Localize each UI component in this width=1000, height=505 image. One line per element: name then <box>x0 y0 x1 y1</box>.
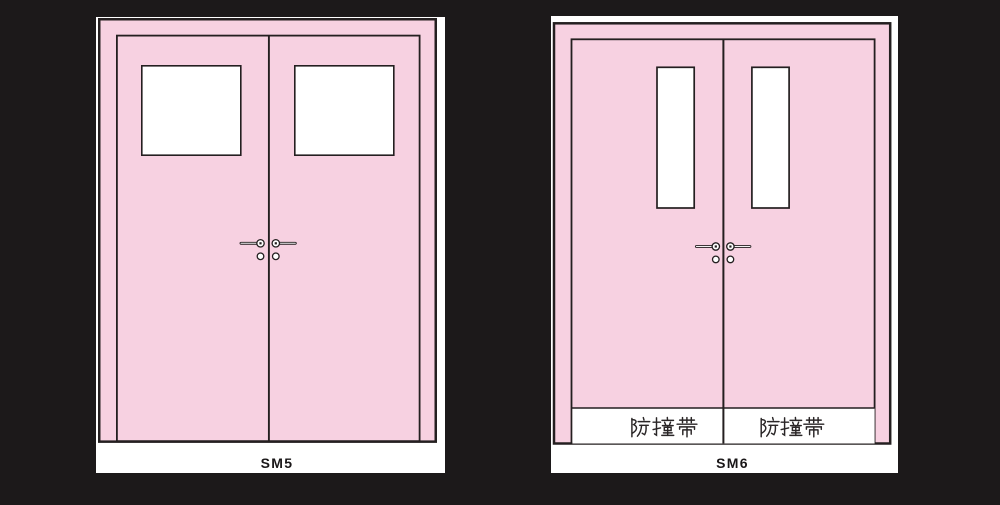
svg-text:SM6: SM6 <box>716 455 749 471</box>
svg-text:SM5: SM5 <box>261 455 294 471</box>
